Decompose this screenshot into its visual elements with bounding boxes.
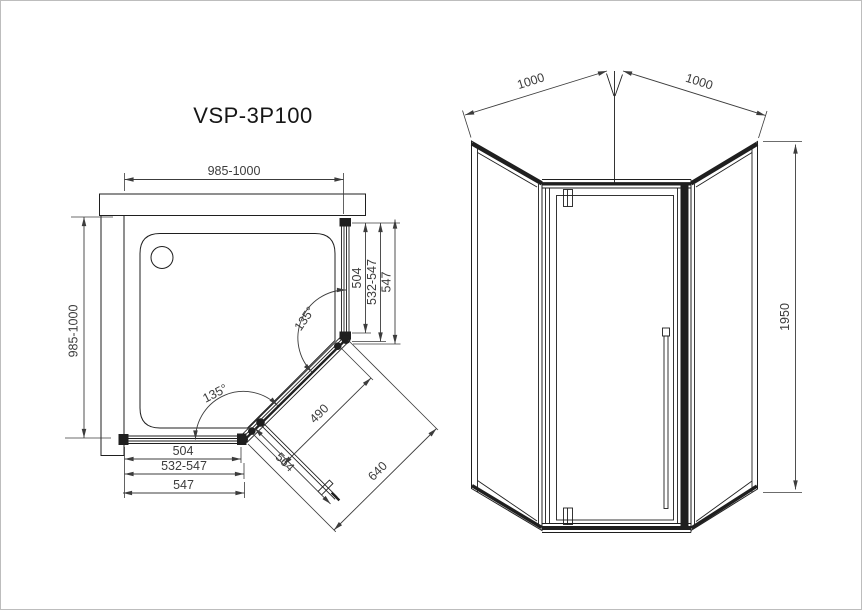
dim-label: 985-1000 (208, 164, 261, 178)
dim-door-opening: 490 (253, 348, 373, 467)
dim-door-panel: 564 (255, 428, 331, 504)
page-title: VSP-3P100 (193, 103, 312, 128)
door-pivot (256, 418, 265, 427)
panel-outline (691, 142, 758, 531)
pivot-door-open (256, 418, 338, 499)
door-leaf-lines (259, 421, 337, 499)
dim-label: 504 (350, 268, 364, 289)
drain-icon (151, 247, 173, 269)
door-hinge-bottom (564, 508, 573, 525)
pivot-door-closed (239, 335, 351, 444)
corner-hinge-bottom (239, 435, 248, 444)
door-leaf-tip (333, 494, 339, 500)
dim-bottom-total: 547 (123, 478, 245, 498)
shower-tray (140, 234, 335, 429)
panel-outline (472, 141, 543, 531)
wall-profile-top (340, 218, 352, 227)
dim-width-left-1000: 1000 (463, 70, 608, 137)
front-view: 1000 1000 1950 (463, 70, 803, 532)
front-panel-right (691, 142, 758, 531)
angle-label: 135° (292, 304, 318, 333)
dim-label: 504 (173, 444, 194, 458)
top-profile (474, 145, 541, 183)
wall-left (101, 216, 124, 456)
dim-label: 640 (365, 459, 390, 484)
door-glass (557, 196, 674, 521)
dim-label: 985-1000 (67, 305, 81, 358)
wall-profile-left (119, 434, 129, 445)
dim-plan-depth-left: 985-1000 (65, 217, 113, 438)
dim-label: 1000 (684, 71, 715, 93)
dim-plan-width-top: 985-1000 (125, 164, 344, 214)
top-profile (693, 145, 756, 183)
dim-height-1950: 1950 (763, 142, 802, 493)
front-door (542, 180, 691, 533)
dim-bottom-adjust: 532-547 (125, 459, 245, 479)
dim-label: 532-547 (161, 459, 207, 473)
bottom-profile (474, 487, 541, 527)
glass-panel-bottom (129, 436, 238, 444)
dim-label: 532-547 (365, 259, 379, 305)
door-hinge-top (564, 190, 573, 207)
dim-label: 547 (173, 478, 194, 492)
dim-label: 1000 (515, 70, 546, 92)
angle-label: 135° (200, 381, 229, 405)
plan-view: 985-1000 985-1000 504 532-547 547 (65, 164, 438, 532)
bottom-profile (693, 487, 756, 527)
wall-top (100, 194, 366, 216)
front-panel-left (472, 141, 543, 531)
pivot-point-bottom (248, 427, 256, 435)
angle-dim-right: 135° (292, 290, 346, 372)
corner-hinge-top (342, 335, 351, 344)
dim-label: 1950 (778, 303, 792, 331)
pivot-point-top (334, 342, 342, 350)
technical-drawing: VSP-3P100 (1, 1, 862, 610)
drawing-sheet: VSP-3P100 (0, 0, 862, 610)
door-handle-plan (318, 480, 333, 495)
glass-panel-right (342, 227, 350, 334)
dim-width-right-1000: 1000 (623, 71, 767, 138)
center-line (607, 71, 623, 184)
right-post (681, 185, 689, 529)
dim-label: 547 (380, 272, 394, 293)
door-handle-front (663, 328, 670, 509)
dim-label: 490 (307, 401, 332, 426)
left-stile (546, 188, 550, 524)
